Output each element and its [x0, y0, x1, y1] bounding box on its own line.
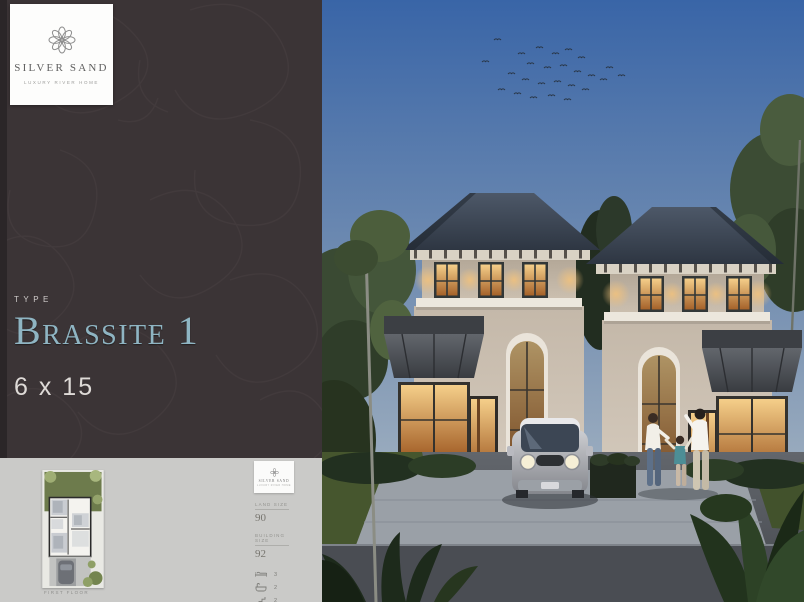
stairs-icon [255, 596, 267, 602]
bathrooms-count: 2 [274, 585, 278, 591]
bed-icon [255, 570, 267, 579]
plan-side-column: SILVER SAND LUXURY RIVER HOME LAND SIZE … [252, 461, 298, 602]
rosette-icon [270, 468, 279, 477]
brand-tagline: LUXURY RIVER HOME [24, 80, 99, 85]
house-render [322, 0, 804, 602]
land-size-value: 90 [255, 512, 298, 524]
rosette-icon [47, 25, 77, 55]
spec-storeys: 2 [255, 594, 298, 602]
storeys-count: 2 [274, 598, 278, 602]
house-type-title: Brassite 1 [14, 311, 199, 351]
spec-bathrooms: 2 [255, 581, 298, 594]
floorplan-card: FIRST FLOOR SILVER SAND LUXURY RIVER HOM… [0, 458, 322, 602]
brand-tagline: LUXURY RIVER HOME [257, 484, 291, 487]
type-block: TYPE Brassite 1 6 x 15 [14, 295, 199, 402]
brochure-page: SILVER SAND LUXURY RIVER HOME TYPE Brass… [0, 0, 804, 602]
mini-brand-card: SILVER SAND LUXURY RIVER HOME [254, 461, 294, 493]
brand-name: SILVER SAND [259, 479, 290, 483]
building-size-label: BUILDING SIZE [255, 533, 298, 543]
floorplan-caption: FIRST FLOOR [44, 590, 89, 595]
spec-bedrooms: 3 [255, 568, 298, 581]
brand-logo-card: SILVER SAND LUXURY RIVER HOME [10, 4, 113, 105]
building-size-value: 92 [255, 548, 298, 560]
spec-list: 3 2 2 [255, 568, 298, 602]
bath-icon [255, 583, 267, 592]
brand-name: SILVER SAND [14, 62, 108, 74]
building-size-metric: BUILDING SIZE 92 [255, 533, 298, 560]
panel-edge-shade [0, 0, 7, 458]
left-panel: SILVER SAND LUXURY RIVER HOME TYPE Brass… [0, 0, 322, 458]
floorplan-thumbnail [42, 470, 104, 588]
land-size-label: LAND SIZE [255, 502, 298, 507]
lot-size: 6 x 15 [14, 373, 199, 402]
type-label: TYPE [14, 295, 199, 304]
bedrooms-count: 3 [274, 572, 278, 578]
land-size-metric: LAND SIZE 90 [255, 502, 298, 524]
